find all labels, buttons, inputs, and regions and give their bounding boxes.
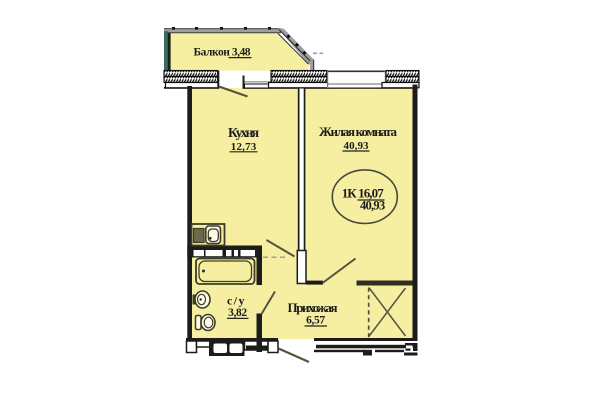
svg-text:Прихожая: Прихожая bbox=[288, 300, 338, 315]
svg-text:3,82: 3,82 bbox=[228, 307, 247, 319]
svg-text:40,93: 40,93 bbox=[360, 199, 385, 213]
svg-text:6,57: 6,57 bbox=[306, 315, 325, 327]
svg-text:Кухня: Кухня bbox=[228, 125, 259, 140]
svg-text:Жилая комната: Жилая комната bbox=[319, 124, 398, 139]
svg-text:40,93: 40,93 bbox=[344, 140, 370, 152]
svg-text:Балкон 3,48: Балкон 3,48 bbox=[194, 47, 251, 59]
svg-text:с/у: с/у bbox=[227, 294, 245, 308]
svg-text:12,73: 12,73 bbox=[231, 141, 257, 153]
